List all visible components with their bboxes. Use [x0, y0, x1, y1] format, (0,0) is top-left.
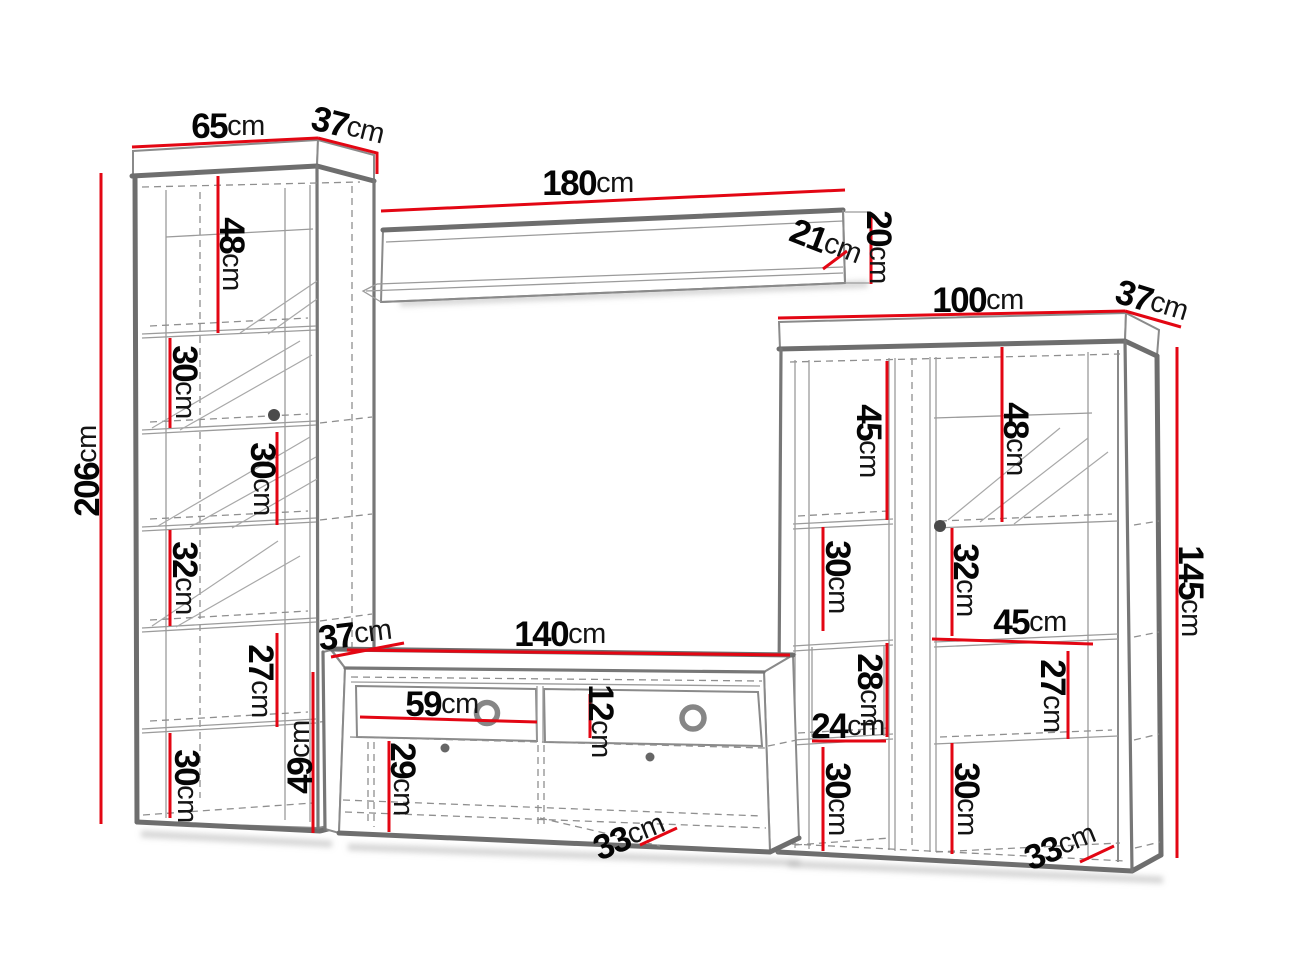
wall-unit-diagram: 65cm 37cm 206cm 48cm 30cm 30cm 32cm 27cm…: [0, 0, 1295, 971]
dim-label-tv-drawer-height: 12cm: [582, 684, 621, 758]
dim-label-tv-width: 140cm: [514, 615, 606, 654]
dim-label-lc-section3: 30cm: [244, 442, 283, 516]
dim-label-tv-drawer-width: 59cm: [405, 685, 479, 724]
dim-label-rc-left2: 30cm: [819, 540, 858, 614]
dim-label-right-cabinet-height: 145cm: [1172, 545, 1211, 637]
dim-label-lc-section6: 30cm: [168, 749, 207, 823]
dim-label-rc-right4: 30cm: [948, 762, 987, 836]
dim-label-rc-right1: 48cm: [997, 402, 1036, 476]
shelf-pin-dot: [441, 744, 450, 753]
dim-label-rc-left3: 30cm: [819, 762, 858, 836]
dim-label-lc-section2: 30cm: [166, 345, 205, 419]
furniture-dimension-diagram: 65cm 37cm 206cm 48cm 30cm 30cm 32cm 27cm…: [0, 0, 1295, 971]
left-cabinet-door-handle: [268, 409, 280, 421]
dim-label-left-cabinet-height: 206cm: [68, 425, 107, 517]
dim-label-rc-niche-width: 24cm: [811, 707, 885, 746]
dim-label-rc-shelf-width: 45cm: [993, 603, 1067, 642]
dim-label-lc-section1: 48cm: [213, 217, 252, 291]
dim-label-rc-right3: 27cm: [1034, 659, 1073, 733]
right-cabinet-door-handle: [934, 520, 946, 532]
dim-label-lc-section5: 27cm: [242, 644, 281, 718]
dim-label-lc-section4: 32cm: [166, 541, 205, 615]
shelf-pin-dot: [646, 753, 655, 762]
dim-label-right-cabinet-width: 100cm: [932, 281, 1024, 320]
dim-label-tv-height: 49cm: [281, 720, 320, 794]
dim-label-rc-right2: 32cm: [947, 543, 986, 617]
dim-label-shelf-length: 180cm: [542, 164, 634, 203]
right-drawer-handle: [682, 707, 704, 729]
dim-label-shelf-height: 20cm: [860, 210, 899, 284]
dim-label-left-cabinet-width: 65cm: [191, 107, 265, 146]
dim-label-rc-left1: 45cm: [850, 404, 889, 478]
dim-label-tv-compartment: 29cm: [384, 742, 423, 816]
